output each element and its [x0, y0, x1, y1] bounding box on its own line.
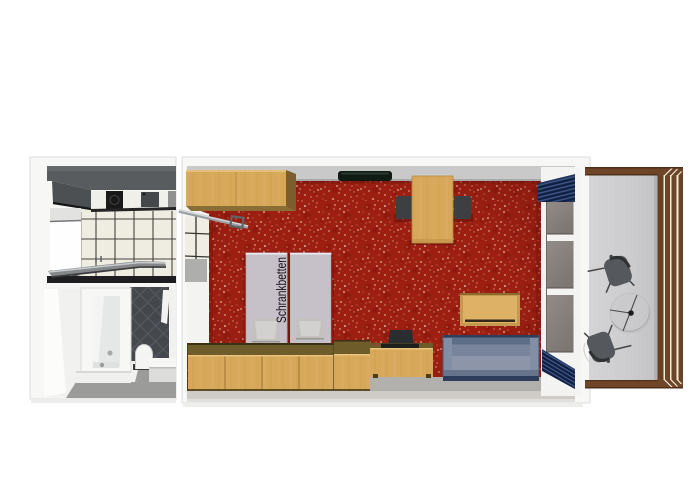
- svg-text:Schrankbetten: Schrankbetten: [273, 257, 289, 323]
